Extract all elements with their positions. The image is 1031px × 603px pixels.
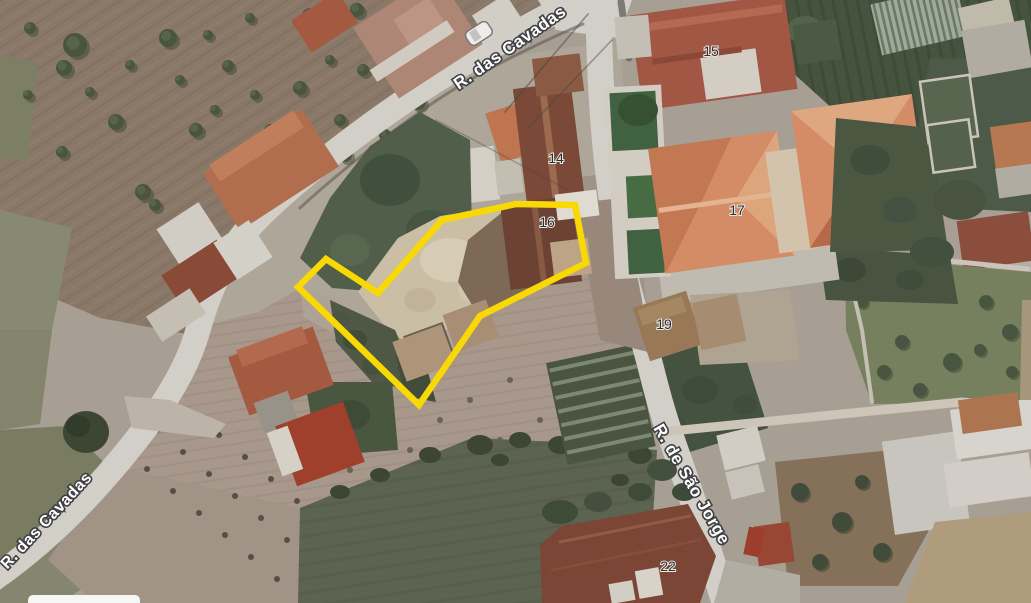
svg-text:17: 17 (729, 202, 745, 218)
svg-text:22: 22 (660, 558, 676, 574)
svg-text:14: 14 (548, 150, 564, 166)
svg-text:19: 19 (656, 316, 672, 332)
svg-text:16: 16 (539, 214, 555, 230)
svg-text:15: 15 (703, 43, 719, 59)
